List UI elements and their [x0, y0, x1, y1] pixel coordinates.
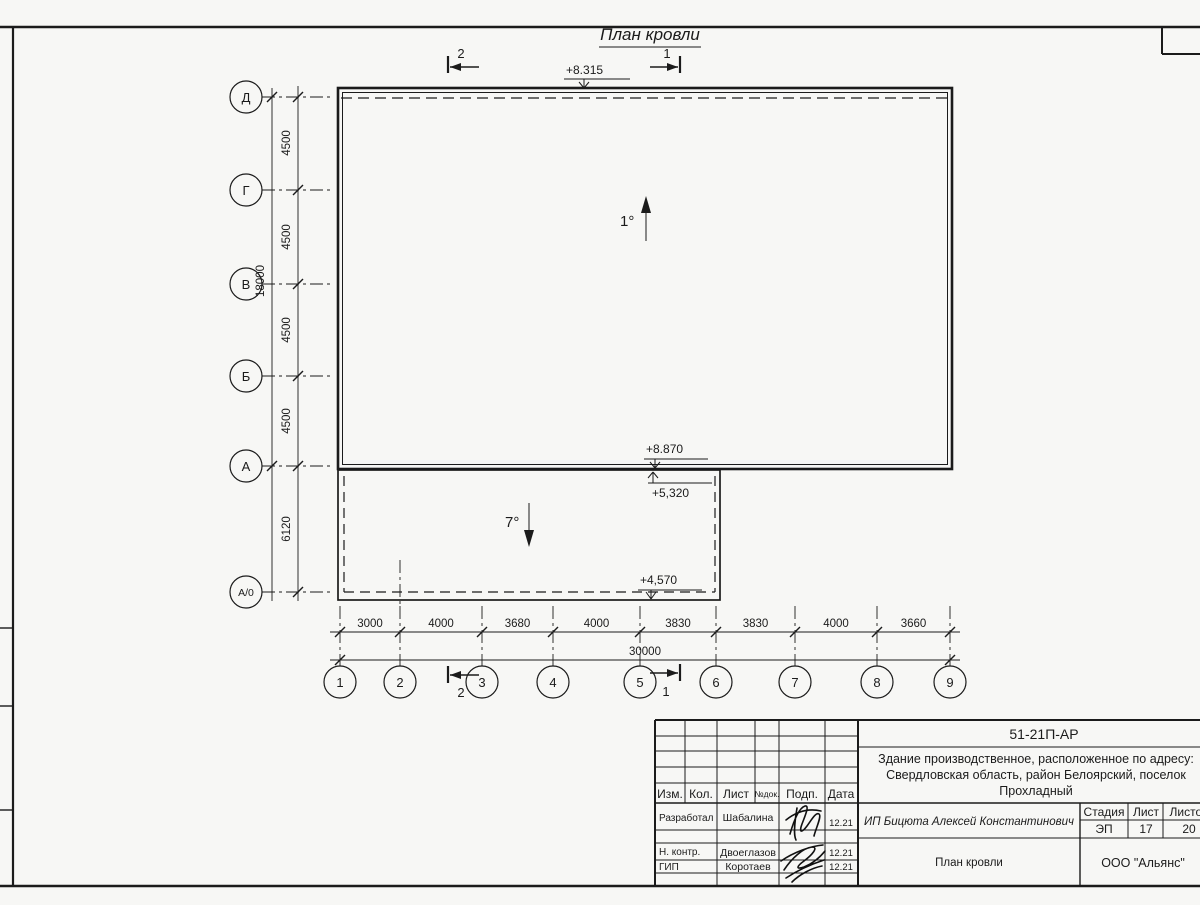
elevation-mark-canopy-low: +4,570 [638, 573, 702, 599]
role-label: Н. контр. [659, 847, 700, 858]
date-value: 12.21 [829, 862, 853, 873]
dim-text: 4000 [428, 618, 454, 630]
axis-label-8: 8 [873, 675, 880, 690]
horizontal-dim-texts: 3000 4000 3680 4000 3830 3830 4000 3660 … [357, 618, 926, 658]
dim-total-text: 18000 [255, 265, 267, 297]
axis-label-v: В [242, 277, 251, 292]
axis-label-6: 6 [712, 675, 719, 690]
axis-lines-dashdot [262, 97, 332, 592]
vertical-dim-texts: 4500 4500 4500 4500 6120 18000 [255, 130, 293, 542]
description-line: Свердловская область, район Белоярский, … [886, 768, 1186, 782]
elevation-mark-canopy-high: +5,320 [648, 472, 712, 500]
axis-circles-numbers [324, 666, 966, 698]
axis-label-3: 3 [478, 675, 485, 690]
dim-text: 4500 [281, 408, 293, 434]
sheet-number: 17 [1139, 822, 1153, 836]
col-header: №док. [755, 789, 780, 799]
left-dimension-lines: 4500 4500 4500 4500 6120 18000 [255, 86, 303, 601]
dim-text: 3680 [505, 618, 531, 630]
dim-text: 4000 [823, 618, 849, 630]
arrow-down-icon [524, 530, 534, 547]
person-name: Двоеглазов [720, 847, 776, 859]
stage-value: ЭП [1095, 822, 1112, 836]
person-name: Шабалина [723, 812, 774, 824]
elevation-value: +8.315 [566, 63, 603, 77]
section-mark-2-top: 2 [448, 46, 479, 73]
axis-label-b: Б [242, 369, 251, 384]
dim-text: 3000 [357, 618, 383, 630]
page-title: План кровли [600, 25, 700, 44]
axis-label-d: Д [242, 90, 251, 105]
col-header: Дата [828, 787, 855, 801]
slope-arrows: 1° 7° [505, 196, 651, 547]
slope-value: 7° [505, 514, 519, 531]
stage-label: Стадия [1084, 805, 1125, 819]
project-description: Здание производственное, расположенное п… [878, 752, 1194, 798]
axis-label-4: 4 [549, 675, 556, 690]
slope-arrow-main: 1° [620, 196, 651, 241]
section-mark-1-top: 1 [650, 46, 680, 73]
doc-number: 51-21П-АР [1009, 726, 1078, 742]
axis-label-g: Г [242, 183, 249, 198]
dim-text: 4000 [584, 618, 610, 630]
dim-text: 3830 [665, 618, 691, 630]
axis-label-a0: А/0 [238, 587, 254, 599]
sheets-total: 20 [1182, 822, 1196, 836]
axis-label-7: 7 [791, 675, 798, 690]
section-mark-2-bottom: 2 [448, 666, 479, 700]
main-roof-outline [338, 88, 952, 469]
axis-label-1: 1 [336, 675, 343, 690]
signature-dvoeglazov-korotaev [781, 845, 825, 882]
axis-circles-letters [230, 81, 262, 608]
slope-value: 1° [620, 213, 634, 230]
bottom-dimension-lines: 3000 4000 3680 4000 3830 3830 4000 3660 … [330, 618, 960, 665]
corner-doc-number-box [1162, 28, 1200, 54]
elevation-marks: +8.315 +8.870 +5,320 +4,570 [564, 63, 712, 599]
person-name: Коротаев [725, 861, 771, 873]
role-label: Разработал [659, 812, 714, 824]
role-label: ГИП [659, 862, 679, 873]
elevation-value: +5,320 [652, 486, 689, 500]
col-header: Кол. [689, 787, 713, 801]
client-name: ИП Бицюта Алексей Константинович [864, 816, 1074, 828]
sheets-label: Листов [1170, 805, 1200, 819]
drawing-sheet: План кровли Д Г В [0, 0, 1200, 900]
dim-text: 4500 [281, 224, 293, 250]
dim-text: 6120 [281, 516, 293, 542]
dim-text: 4500 [281, 317, 293, 343]
drawing-name: План кровли [935, 857, 1003, 869]
section-marks: 2 1 2 1 [448, 46, 680, 700]
elevation-value: +4,570 [640, 573, 677, 587]
signature-marks [781, 806, 825, 882]
description-line: Прохладный [999, 784, 1072, 798]
col-header: Подп. [786, 787, 818, 801]
section-label: 1 [663, 46, 670, 61]
dim-total-text: 30000 [629, 646, 661, 658]
drawing-title: План кровли [599, 25, 701, 47]
axis-label-5: 5 [636, 675, 643, 690]
dim-text: 3830 [743, 618, 769, 630]
elevation-mark-roof-main: +8.315 [564, 63, 630, 88]
signature-shabalina [786, 806, 821, 840]
date-value: 12.21 [829, 818, 853, 829]
sheet-label: Лист [1133, 805, 1160, 819]
section-label: 1 [662, 684, 669, 699]
dim-text: 3660 [901, 618, 927, 630]
titleblock: 51-21П-АР Здание производственное, распо… [655, 720, 1200, 886]
axis-label-2: 2 [396, 675, 403, 690]
company-name: ООО "Альянс" [1101, 856, 1185, 870]
axis-label-a: А [242, 459, 251, 474]
arrow-up-icon [641, 196, 651, 213]
col-header: Лист [723, 787, 750, 801]
section-label: 2 [457, 685, 464, 700]
section-mark-1-bottom: 1 [650, 664, 680, 699]
slope-arrow-canopy: 7° [505, 503, 534, 547]
date-value: 12.21 [829, 848, 853, 859]
elevation-value: +8.870 [646, 442, 683, 456]
axis-label-9: 9 [946, 675, 953, 690]
section-label: 2 [457, 46, 464, 61]
description-line: Здание производственное, расположенное п… [878, 752, 1194, 766]
dim-text: 4500 [281, 130, 293, 156]
col-header: Изм. [657, 787, 683, 801]
